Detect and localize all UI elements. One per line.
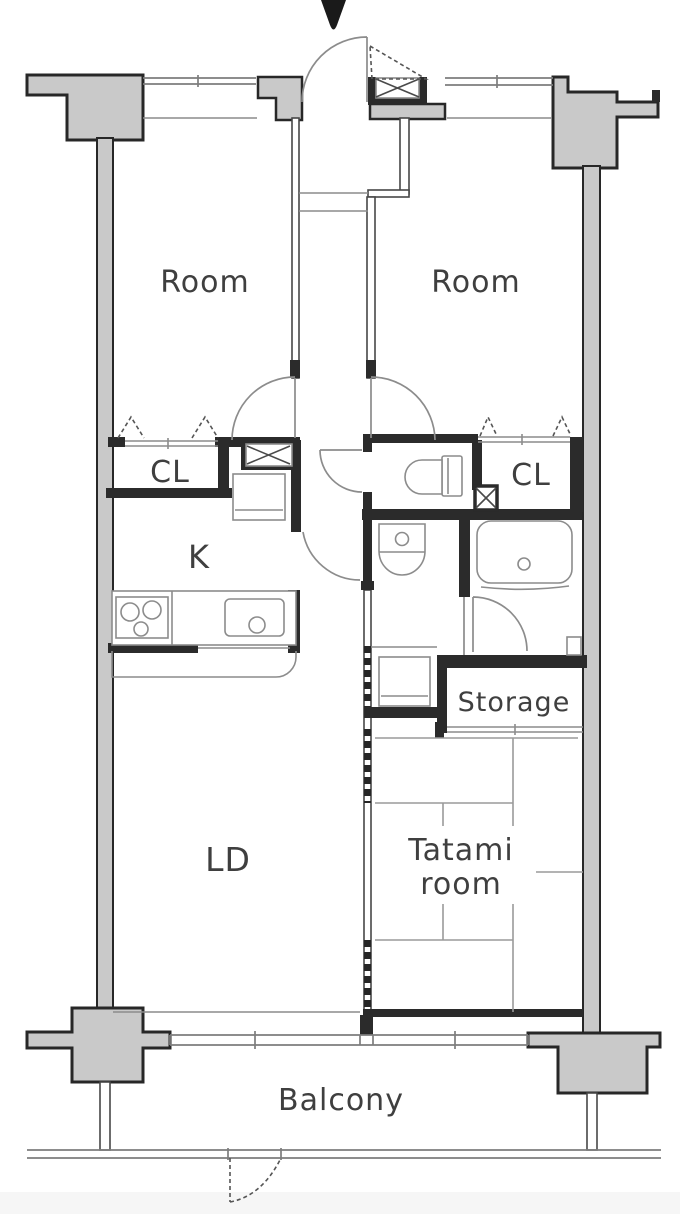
label-room-right: Room [431, 265, 520, 300]
label-tatami-line1: Tatami [407, 833, 513, 868]
label-closet-right: CL [511, 458, 551, 493]
label-closet-left: CL [150, 455, 190, 490]
floor-plan-page: Room Room CL CL K Storage LD Tatami room… [0, 0, 680, 1214]
refrigerator-space [233, 474, 285, 520]
label-kitchen: K [188, 538, 210, 576]
label-balcony: Balcony [278, 1083, 404, 1118]
wall-right [583, 166, 600, 1034]
label-room-left: Room [160, 265, 249, 300]
bath-step [567, 637, 581, 655]
floor-plan-drawing: Room Room CL CL K Storage LD Tatami room… [0, 0, 680, 1214]
wall-left [97, 138, 113, 1010]
balcony-wall-left [100, 1082, 110, 1150]
washing-machine-space [379, 657, 430, 706]
washbasin-icon [379, 524, 425, 575]
page-bottom-band [0, 1192, 680, 1214]
label-storage: Storage [458, 687, 571, 718]
balcony-wall-right [587, 1093, 597, 1150]
neighbor-wall-tick [652, 90, 660, 102]
entry-wall-right [370, 104, 445, 119]
label-tatami-line2: room [420, 867, 502, 902]
toilet-icon [405, 456, 462, 496]
label-living-dining: LD [205, 840, 251, 879]
